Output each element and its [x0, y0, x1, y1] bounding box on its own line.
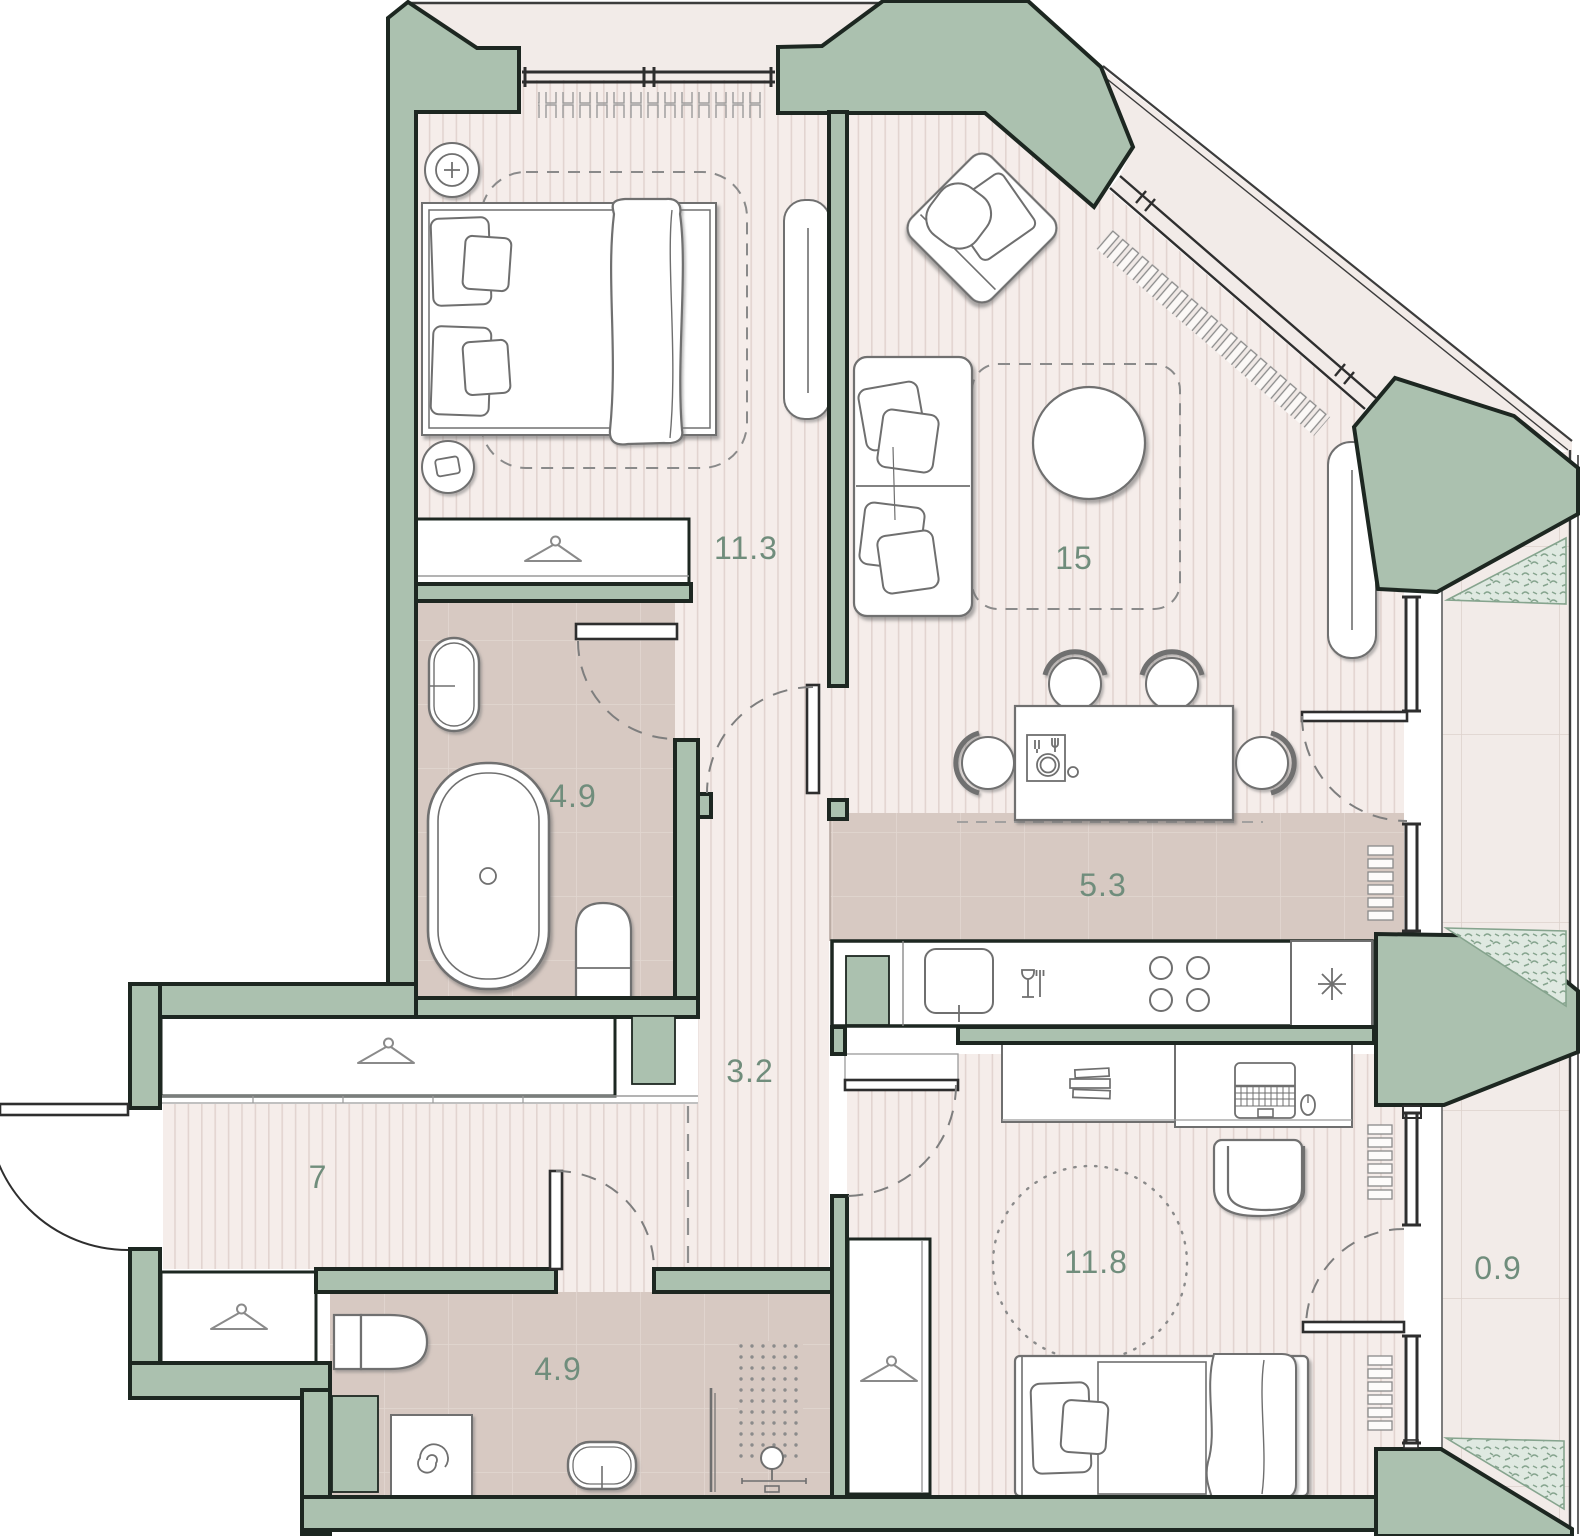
- svg-text:7: 7: [309, 1159, 328, 1195]
- svg-text:0.9: 0.9: [1474, 1250, 1521, 1286]
- svg-text:4.9: 4.9: [549, 778, 596, 814]
- svg-text:11.8: 11.8: [1064, 1244, 1128, 1280]
- svg-text:5.3: 5.3: [1079, 867, 1126, 903]
- svg-text:11.3: 11.3: [714, 530, 778, 566]
- svg-text:3.2: 3.2: [726, 1053, 773, 1089]
- svg-text:4.9: 4.9: [534, 1351, 581, 1387]
- svg-text:15: 15: [1055, 540, 1093, 576]
